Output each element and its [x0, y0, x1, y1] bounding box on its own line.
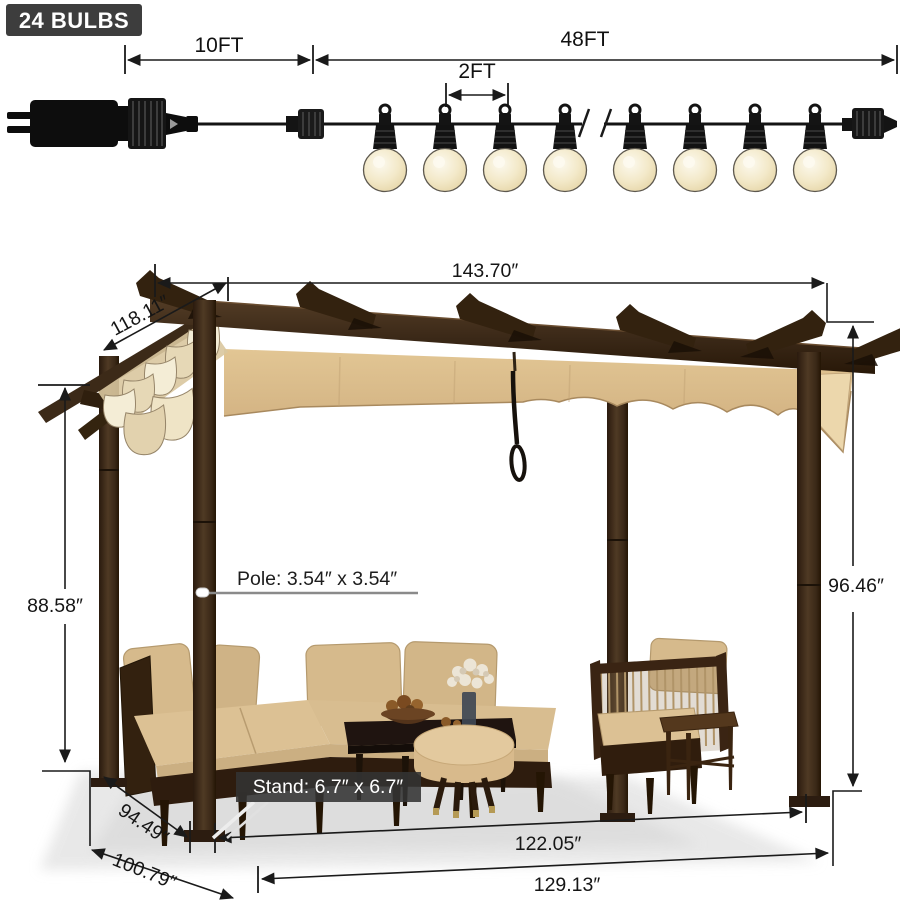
string-lights-diagram: 24 BULBS 10FT 48FT 2FT: [6, 4, 897, 192]
base-width-label: 129.13″: [534, 874, 601, 896]
product-dimension-diagram: 24 BULBS 10FT 48FT 2FT: [0, 0, 900, 900]
stand-size-label: Stand: 6.7″ x 6.7″: [253, 776, 403, 798]
pergola-post-front-left: [193, 300, 216, 836]
string-light-bulb: [484, 105, 527, 192]
post-height-label: 88.58″: [27, 595, 83, 617]
inner-width-label: 122.05″: [515, 833, 582, 855]
overall-height-label: 96.46″: [828, 575, 884, 597]
string-light-bulb: [794, 105, 837, 192]
bulb-spacing-label: 2FT: [458, 60, 496, 83]
string-light-bulb: [674, 105, 717, 192]
dim-string-length: 48FT: [316, 28, 897, 74]
pole-size-callout: Pole: 3.54″ x 3.54″: [196, 568, 418, 597]
power-adapter: [7, 98, 198, 149]
string-light-bulb: [614, 105, 657, 192]
string-light-bulb: [544, 105, 587, 192]
bulb-count-badge: 24 BULBS: [6, 4, 142, 36]
string-light-bulb: [424, 105, 467, 192]
wire-break-marks: [579, 109, 611, 137]
dim-lead-length: 10FT: [125, 34, 313, 74]
pole-size-label: Pole: 3.54″ x 3.54″: [237, 568, 397, 590]
string-light-bulb: [734, 105, 777, 192]
dim-bulb-spacing: 2FT: [446, 60, 508, 107]
pergola-post-front-right: [797, 352, 821, 801]
string-light-bulb: [364, 105, 407, 192]
string-length-label: 48FT: [560, 28, 609, 51]
end-connector: [842, 108, 897, 139]
pergola-illustration: [38, 270, 900, 870]
inline-connector: [286, 109, 324, 139]
top-width-label: 143.70″: [452, 260, 519, 282]
lead-length-label: 10FT: [194, 34, 243, 57]
bulb-count-label: 24 BULBS: [19, 8, 129, 33]
